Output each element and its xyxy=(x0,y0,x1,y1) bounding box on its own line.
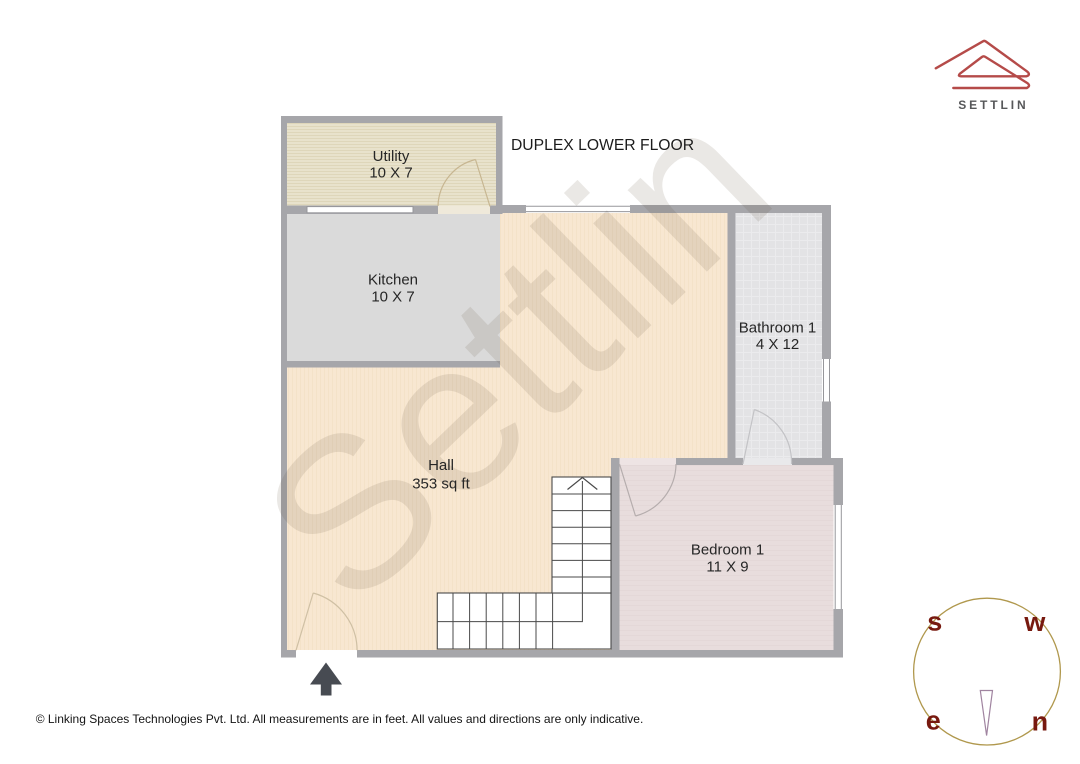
svg-text:DUPLEX LOWER FLOOR: DUPLEX LOWER FLOOR xyxy=(511,137,694,154)
svg-text:Bathroom 1: Bathroom 1 xyxy=(739,320,817,337)
svg-text:11 X 9: 11 X 9 xyxy=(706,559,748,576)
svg-text:s: s xyxy=(927,606,942,636)
svg-text:e: e xyxy=(926,706,941,736)
svg-text:Hall: Hall xyxy=(428,457,454,474)
svg-text:w: w xyxy=(1023,607,1046,637)
svg-text:Utility: Utility xyxy=(373,148,410,165)
svg-text:10 X 7: 10 X 7 xyxy=(369,165,412,182)
svg-text:n: n xyxy=(1032,707,1049,737)
svg-text:SETTLIN: SETTLIN xyxy=(958,98,1028,112)
svg-text:Bedroom 1: Bedroom 1 xyxy=(691,542,764,559)
svg-text:Kitchen: Kitchen xyxy=(368,272,418,289)
svg-text:4 X 12: 4 X 12 xyxy=(756,336,799,353)
svg-text:10 X 7: 10 X 7 xyxy=(371,289,414,306)
svg-text:© Linking Spaces Technologies: © Linking Spaces Technologies Pvt. Ltd. … xyxy=(36,712,644,726)
svg-text:353 sq ft: 353 sq ft xyxy=(412,476,470,493)
